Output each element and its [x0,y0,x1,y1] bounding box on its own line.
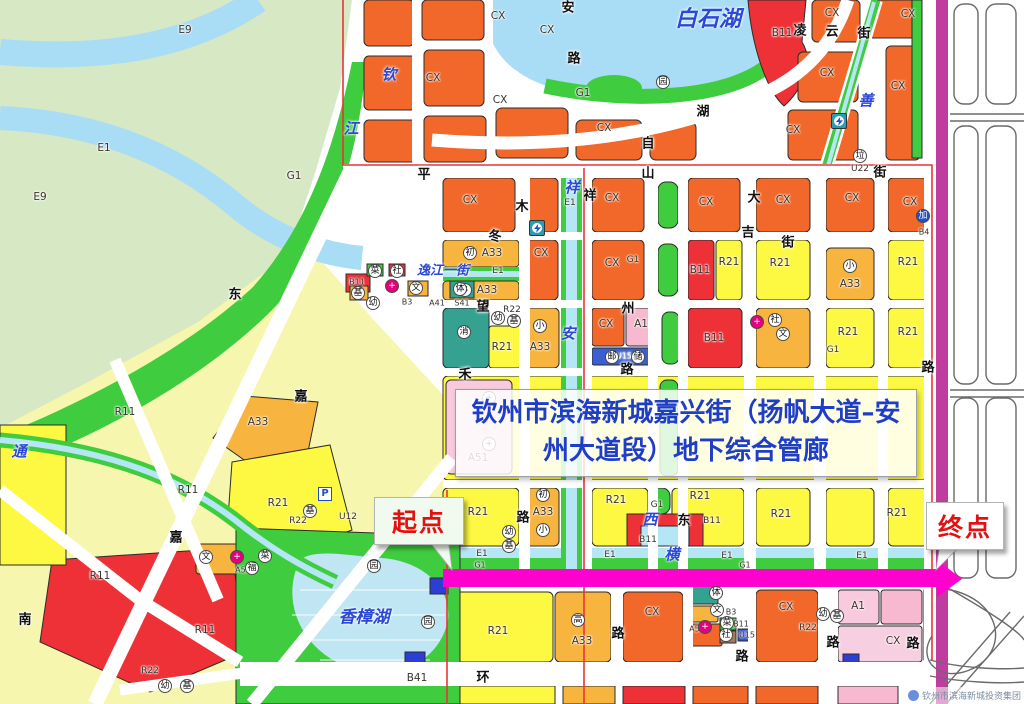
watermark-text: 钦州市滨海新城投资集团 [922,689,1021,702]
project-title-box: 钦州市滨海新城嘉兴街（扬帆大道–安州大道段）地下综合管廊 [455,389,917,477]
watermark-logo-icon [908,690,919,701]
map-viewport[interactable]: E9E1E9CXCXCXCXCXCXCXCXCXCXB11CXCXCXCXCXC… [0,0,1024,704]
planning-map-canvas[interactable] [0,0,1024,704]
arterial-road [936,0,948,704]
watermark: 钦州市滨海新城投资集团 [905,687,1024,704]
project-title: 钦州市滨海新城嘉兴街（扬帆大道–安州大道段）地下综合管廊 [456,395,916,470]
start-point-callout: 起点 [374,497,464,545]
end-point-label: 终点 [938,508,992,544]
end-point-callout: 终点 [926,502,1004,550]
start-point-label: 起点 [392,503,446,539]
